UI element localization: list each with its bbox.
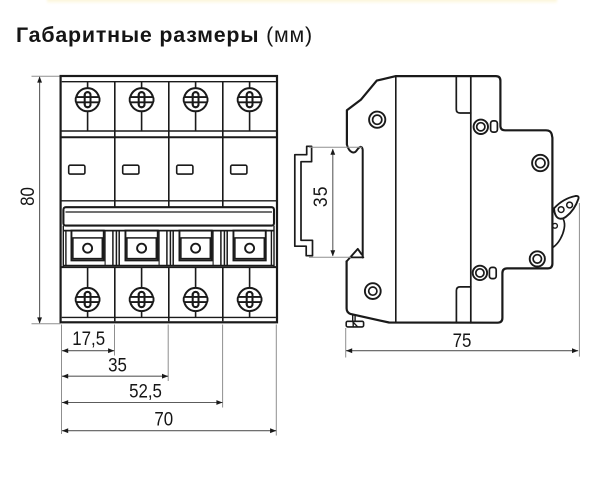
svg-text:17,5: 17,5 — [72, 328, 105, 349]
svg-text:75: 75 — [453, 330, 472, 351]
svg-text:80: 80 — [17, 187, 38, 206]
svg-text:Габаритные размеры (мм): Габаритные размеры (мм) — [16, 23, 313, 47]
svg-text:70: 70 — [154, 408, 173, 429]
svg-text:52,5: 52,5 — [129, 381, 162, 402]
svg-text:35: 35 — [309, 186, 331, 208]
svg-text:35: 35 — [108, 354, 127, 375]
